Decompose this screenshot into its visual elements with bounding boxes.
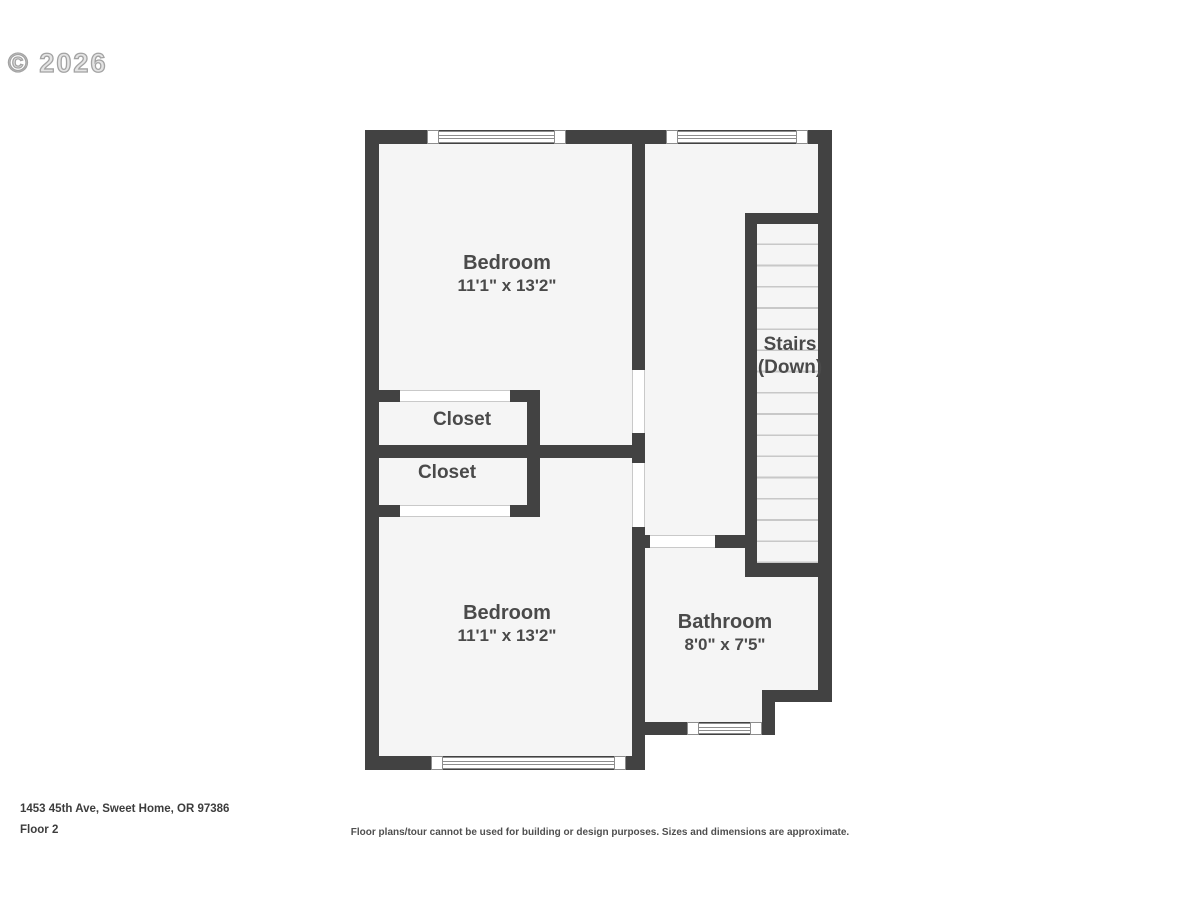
floor-plan-page: © 2026 Bedroom 11'1" x 13'2" Clos (0, 0, 1200, 900)
window-cap (614, 756, 626, 770)
disclaimer-text: Floor plans/tour cannot be used for buil… (0, 827, 1200, 838)
wall-closet-top-left-stub (365, 390, 400, 402)
room-label-bedroom-bottom: Bedroom 11'1" x 13'2" (369, 602, 645, 646)
window-cap (666, 130, 678, 144)
room-label-bathroom: Bathroom 8'0" x 7'5" (645, 611, 805, 655)
wall-center-vertical-upper (632, 130, 645, 370)
stairs-treads (757, 224, 818, 563)
window-symbol (428, 131, 565, 143)
window-cap (431, 756, 443, 770)
exterior-notch (775, 702, 832, 736)
window-cap (554, 130, 566, 144)
window-symbol (667, 131, 807, 143)
window-cap (427, 130, 439, 144)
window-cap (687, 722, 699, 735)
door-opening-bathroom (650, 535, 715, 548)
room-name: Stairs (731, 333, 849, 356)
wall-notch-horizontal (762, 690, 832, 702)
room-dimensions: 8'0" x 7'5" (645, 634, 805, 655)
copyright-watermark: © 2026 (8, 48, 107, 79)
wall-stairs-top (745, 213, 832, 224)
room-name: Closet (377, 462, 517, 484)
room-name: Bedroom (369, 252, 645, 275)
door-opening-closet-bottom (400, 505, 510, 517)
wall-stairs-bottom (745, 563, 832, 577)
room-name: Closet (392, 409, 532, 431)
door-opening-bedroom-bottom (632, 463, 645, 527)
wall-stairs-left (745, 213, 757, 577)
room-name: Bedroom (369, 602, 645, 625)
room-dimensions: 11'1" x 13'2" (369, 625, 645, 646)
window-symbol (432, 757, 625, 769)
room-label-closet-bottom: Closet (377, 462, 517, 484)
window-cap (750, 722, 762, 735)
stairs-direction: (Down) (731, 356, 849, 379)
door-opening-bedroom-top (632, 370, 645, 433)
wall-closet-divider (365, 445, 645, 458)
door-opening-closet-top (400, 390, 510, 402)
room-label-bedroom-top: Bedroom 11'1" x 13'2" (369, 252, 645, 296)
wall-bathroom-north-left-stub (632, 535, 650, 548)
property-address: 1453 45th Ave, Sweet Home, OR 97386 (20, 803, 229, 815)
room-label-closet-top: Closet (392, 409, 532, 431)
wall-closet-bottom-right-stub (510, 505, 540, 517)
room-label-stairs: Stairs (Down) (731, 333, 849, 379)
window-cap (796, 130, 808, 144)
room-name: Bathroom (645, 611, 805, 634)
room-dimensions: 11'1" x 13'2" (369, 275, 645, 296)
wall-closet-bottom-left-stub (365, 505, 400, 517)
